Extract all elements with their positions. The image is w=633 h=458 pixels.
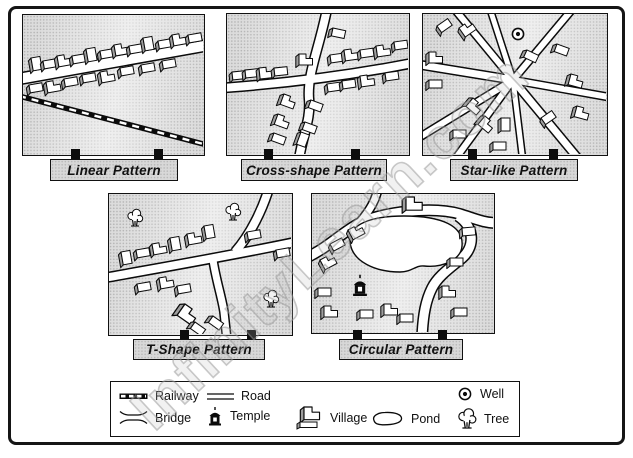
buildings [118,224,291,334]
cross-shape-pattern-map [227,14,408,154]
tree-icon [457,407,477,430]
well-icon [457,386,473,402]
legend-item-bridge: Bridge [119,409,191,426]
legend-label: Village [330,411,367,425]
tree-icon [264,290,279,307]
linear-pattern-label: Linear Pattern [50,159,178,181]
legend-item-temple: Temple [207,405,270,427]
linear-pattern-map [23,15,203,154]
t-shape-pattern-map [109,194,291,334]
label-text: Cross-shape Pattern [246,163,382,178]
panel-cross-shape-pattern [226,13,410,156]
legend-item-tree: Tree [457,407,509,430]
legend-label: Pond [411,412,440,426]
legend-box: Railway Road Well Bridge [110,381,520,437]
legend-label: Railway [155,389,199,403]
circular-pattern-label: Circular Pattern [339,339,463,360]
tree-icon [128,209,143,226]
legend-label: Bridge [155,411,191,425]
legend-label: Tree [484,412,509,426]
roads [227,14,408,154]
tree-icon [226,203,241,220]
label-text: T-Shape Pattern [146,342,252,357]
legend-label: Temple [230,409,270,423]
pond [350,216,462,272]
diagram-canvas: InfinityLearn.com [0,0,633,458]
panel-circular-pattern [311,193,495,334]
legend-item-well: Well [457,386,504,402]
legend-item-pond: Pond [371,411,440,426]
temple-icon [353,275,367,296]
legend-item-road: Road [207,389,271,403]
cross-shape-pattern-label: Cross-shape Pattern [241,159,387,181]
star-like-pattern-label: Star-like Pattern [450,159,578,181]
legend-item-railway: Railway [119,389,199,403]
panel-t-shape-pattern [108,193,293,336]
temple-icon [207,405,223,427]
village-icon [293,405,323,430]
legend-item-village: Village [293,405,367,430]
railway-icon [119,392,148,401]
pond-icon [371,411,404,426]
legend-label: Well [480,387,504,401]
railway-line [23,96,203,146]
label-text: Star-like Pattern [461,163,568,178]
panel-star-like-pattern [422,13,608,156]
circular-pattern-map [312,194,493,332]
label-text: Circular Pattern [349,342,453,357]
t-shape-pattern-label: T-Shape Pattern [133,339,265,360]
legend-label: Road [241,389,271,403]
label-text: Linear Pattern [67,163,161,178]
panel-linear-pattern [22,14,205,156]
star-like-pattern-map [423,14,606,154]
road-icon [207,392,234,401]
bridge-icon [119,409,148,426]
well-icon [512,28,523,39]
